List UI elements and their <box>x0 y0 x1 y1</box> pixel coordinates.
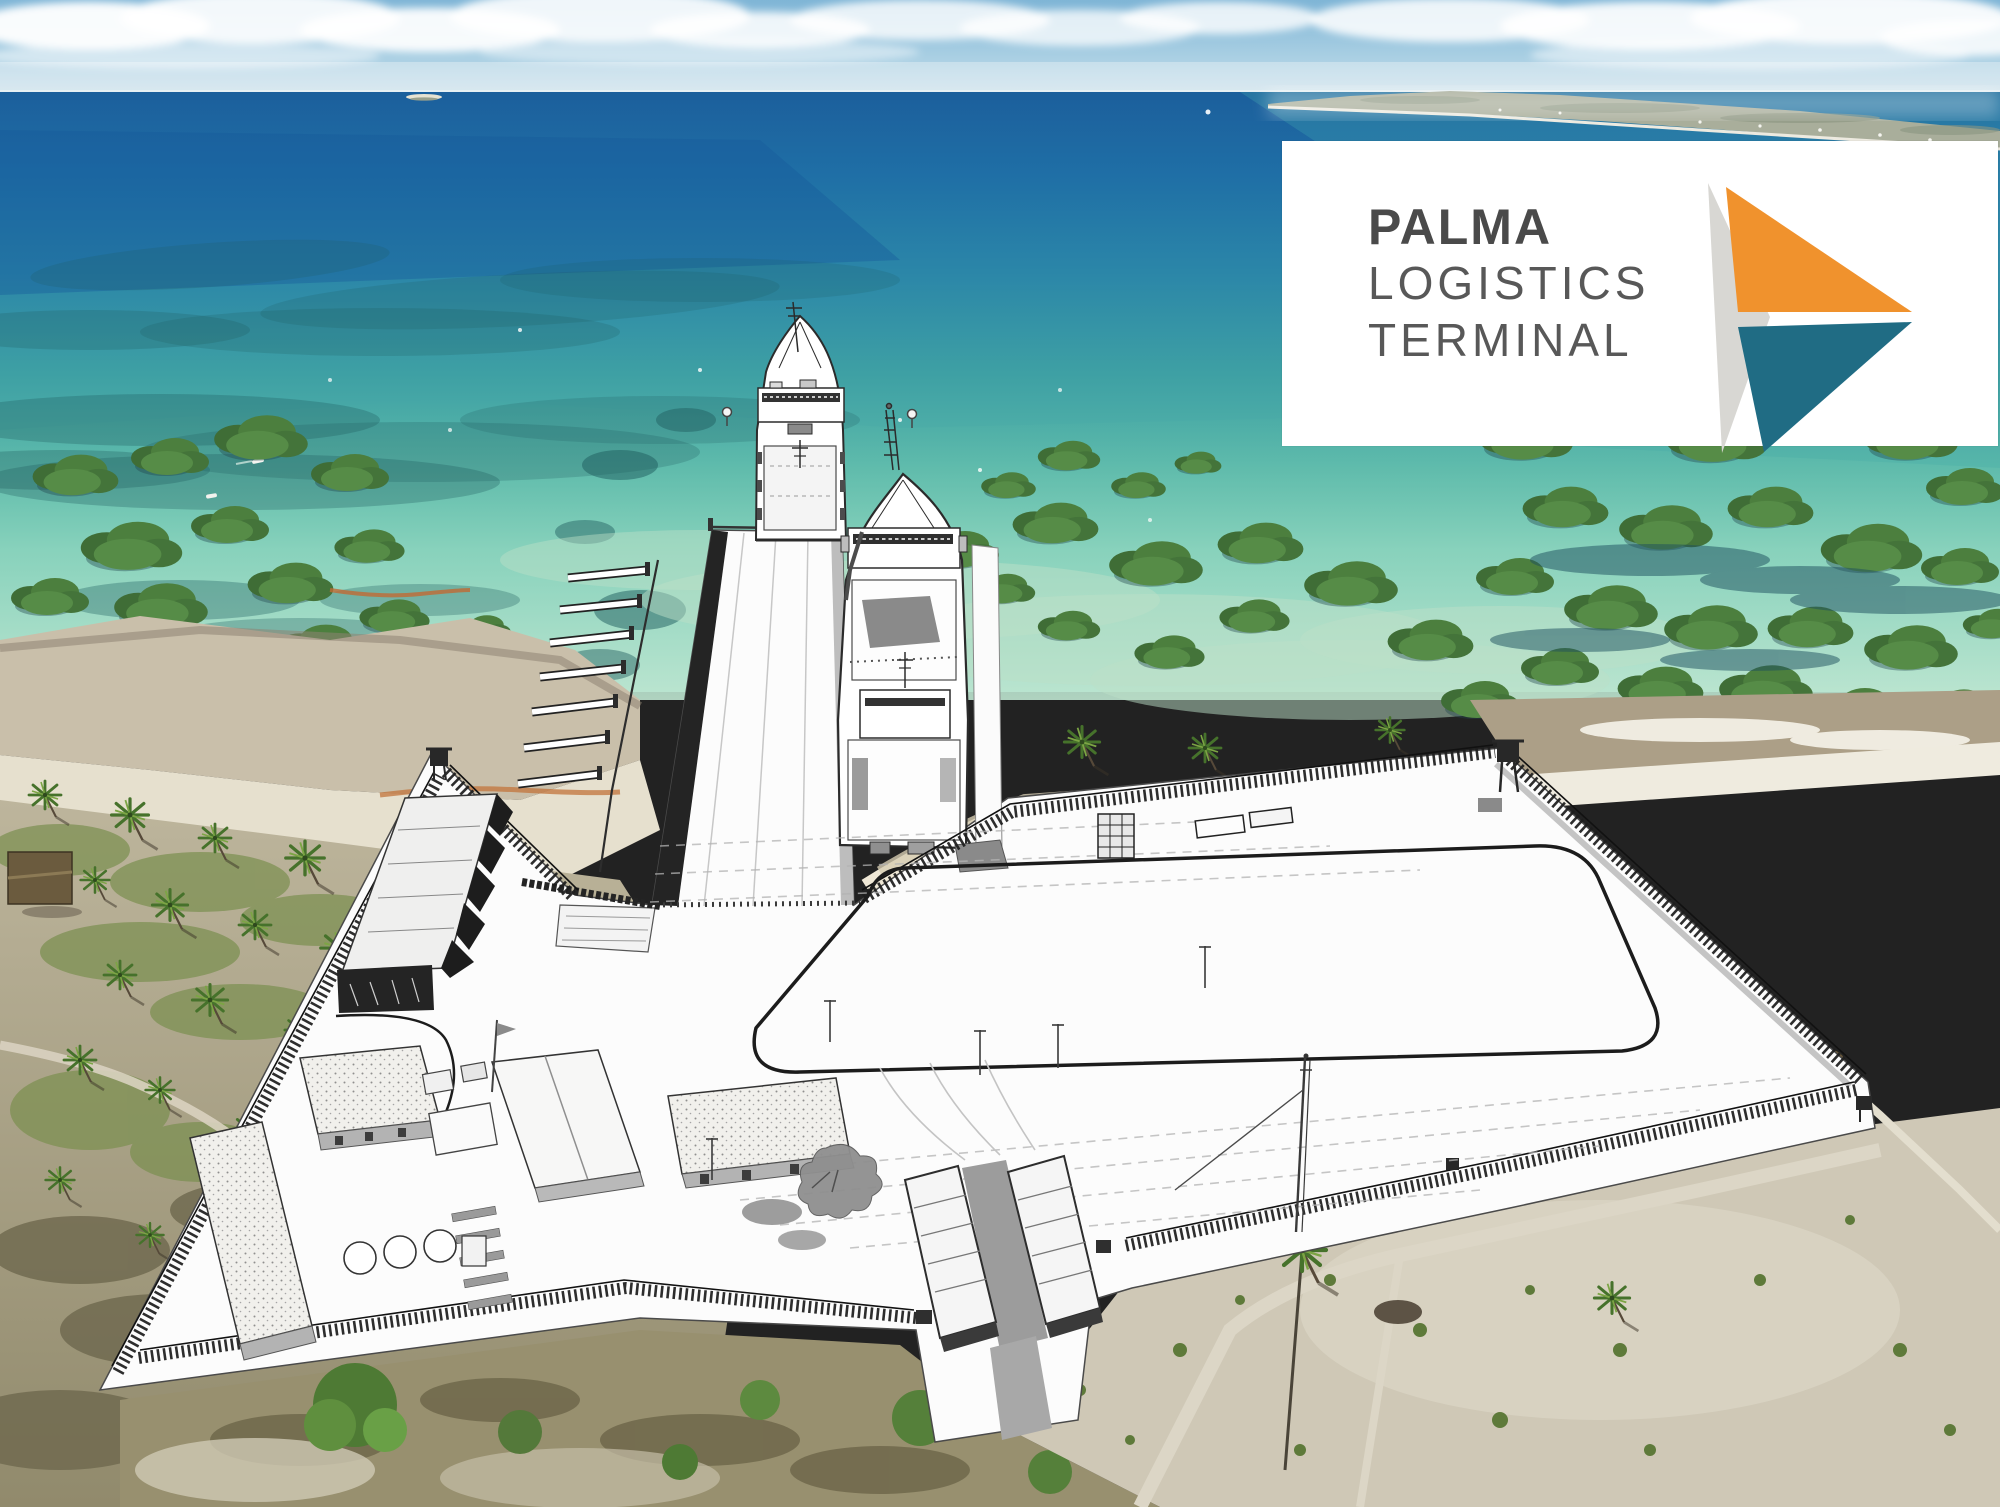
arrow-orange-facet <box>1726 187 1912 312</box>
gate-house-west <box>916 1310 932 1324</box>
horizon-island <box>406 94 442 101</box>
brand-word-terminal: TERMINAL <box>1368 312 1649 369</box>
render-canvas: PALMA LOGISTICS TERMINAL <box>0 0 2000 1507</box>
brand-name: PALMA <box>1368 199 1649 255</box>
pit <box>1374 1300 1422 1324</box>
brand-word-logistics: LOGISTICS <box>1368 255 1649 312</box>
logo-card: PALMA LOGISTICS TERMINAL <box>1282 141 1998 446</box>
logo-text: PALMA LOGISTICS TERMINAL <box>1368 199 1649 369</box>
quay-strip <box>972 545 1002 850</box>
gate-house-east <box>1096 1240 1111 1253</box>
fence-grid-structure <box>1098 814 1134 858</box>
arrow-teal-facet <box>1738 322 1912 452</box>
arrow-logo-icon <box>1696 169 1926 454</box>
sky <box>0 0 2000 95</box>
